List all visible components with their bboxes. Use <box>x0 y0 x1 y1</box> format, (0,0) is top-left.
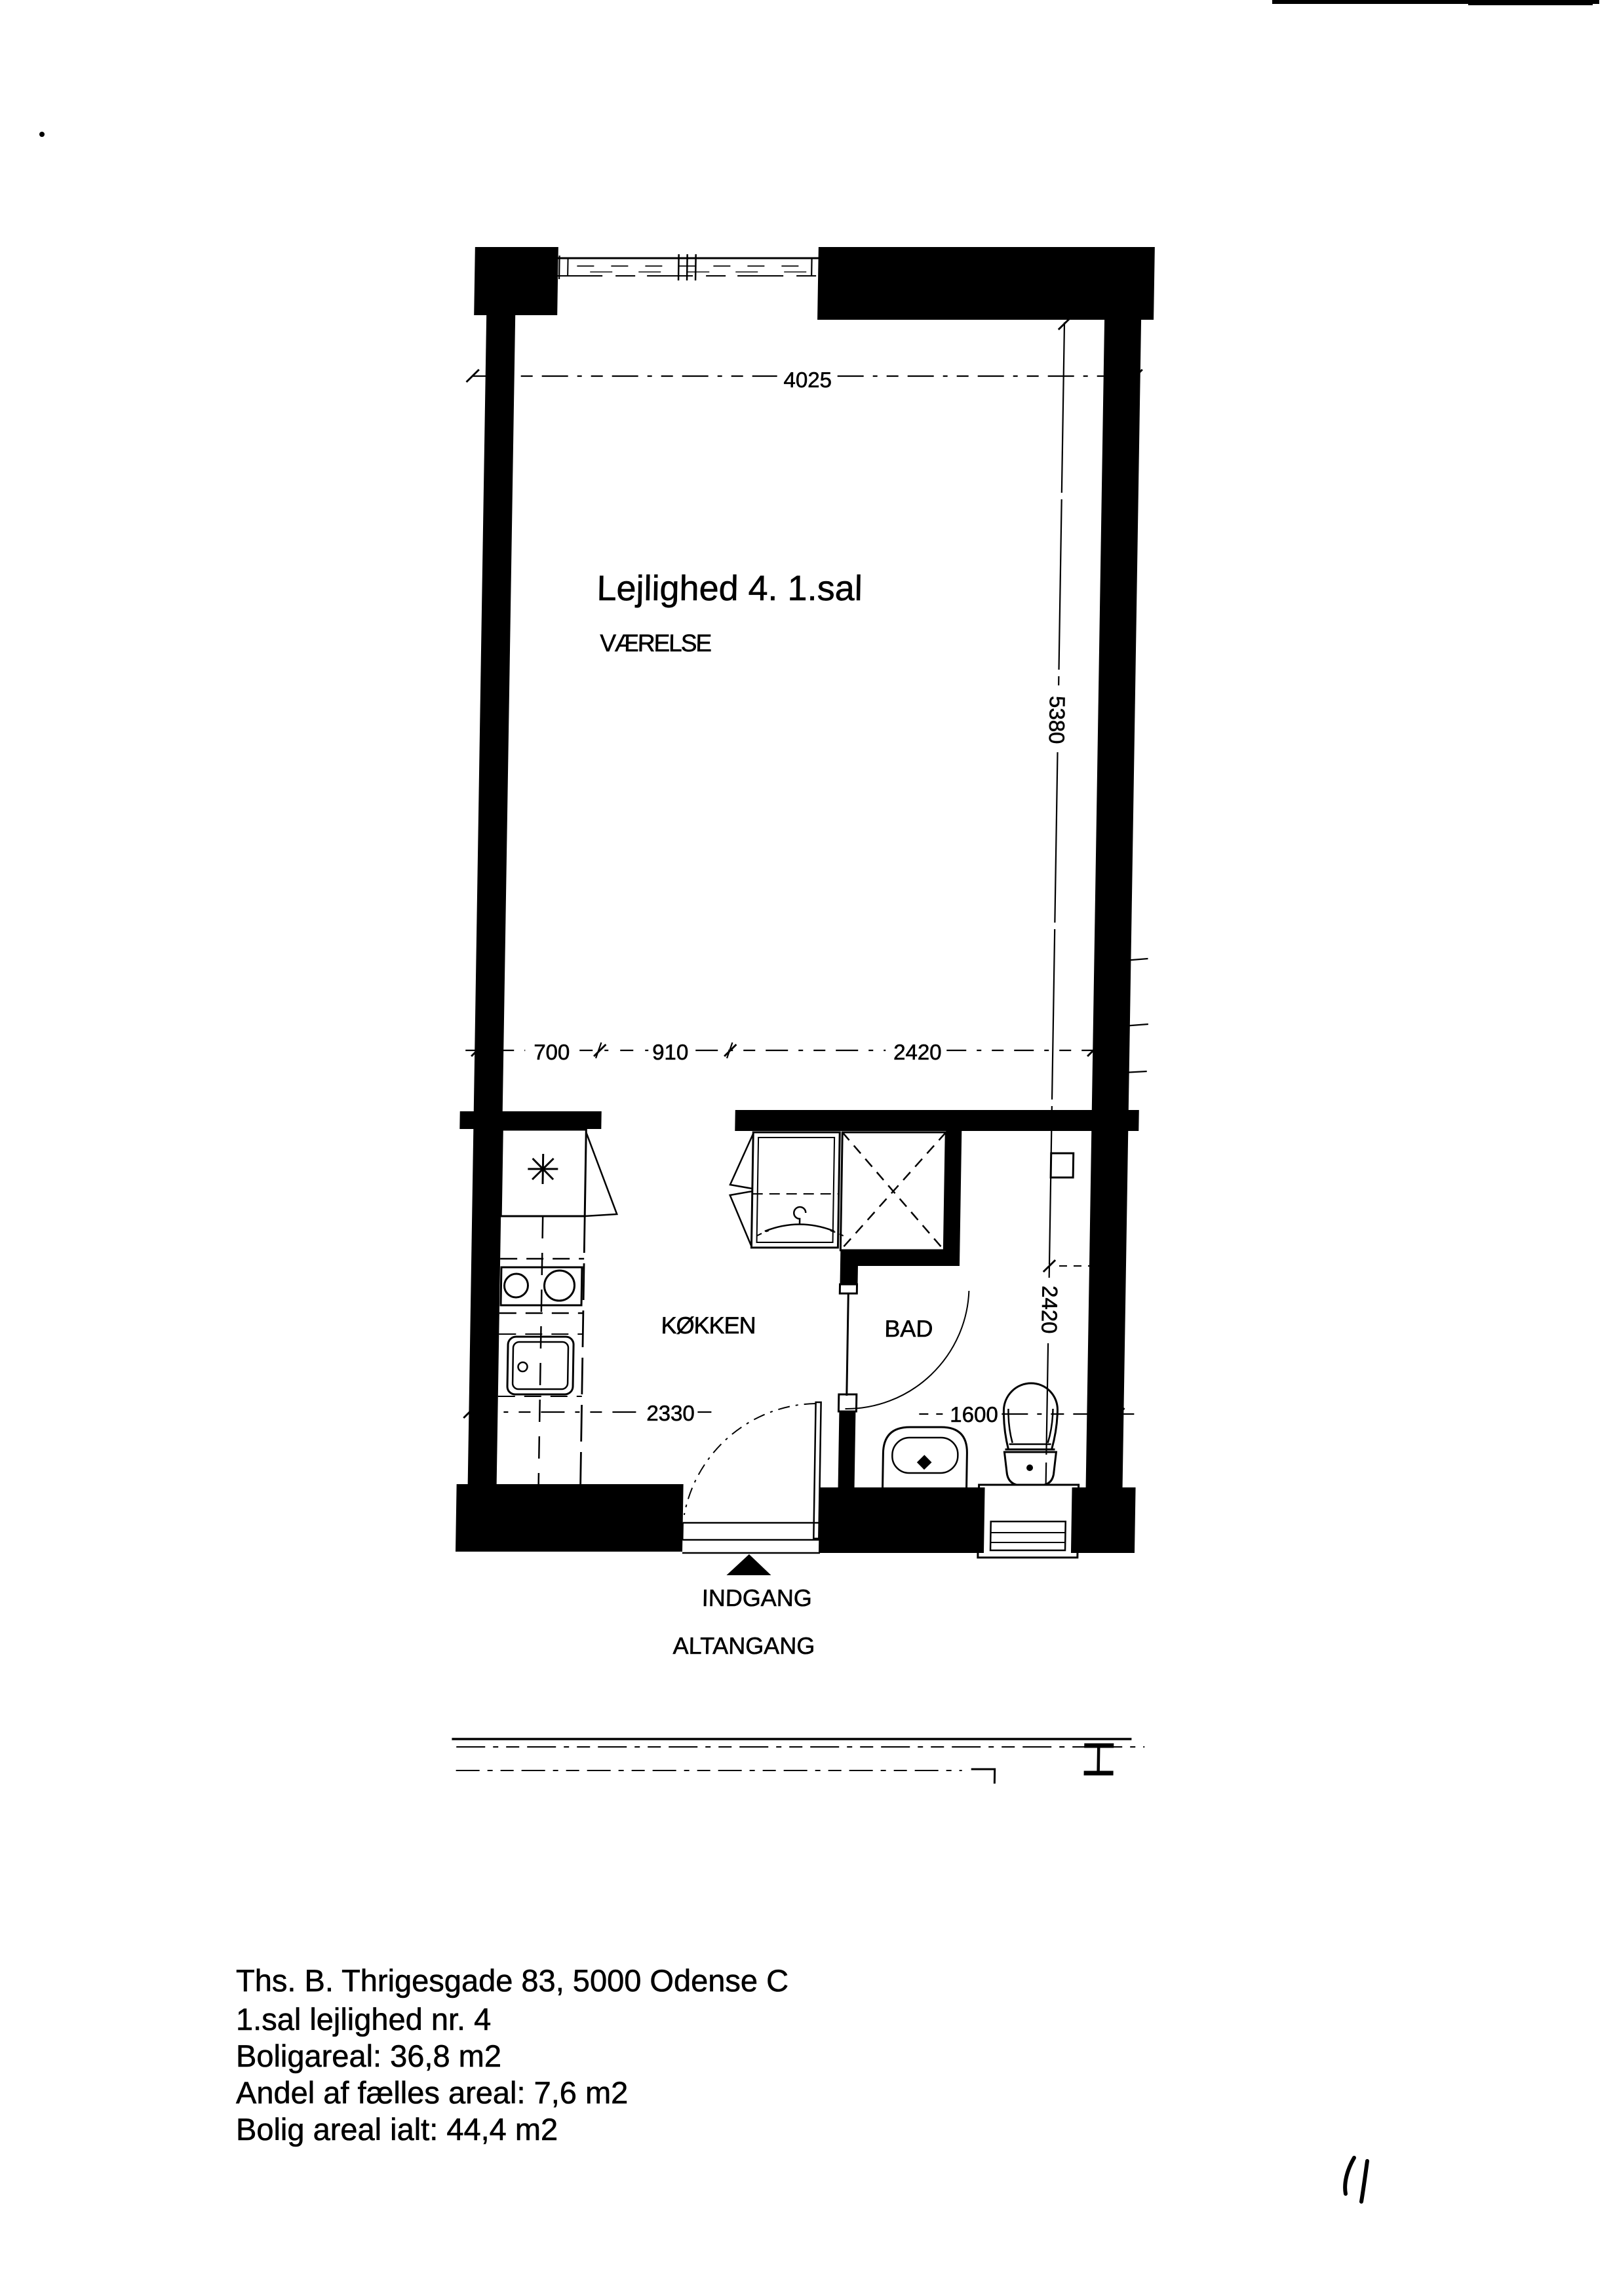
svg-text:INDGANG: INDGANG <box>702 1584 813 1611</box>
svg-text:910: 910 <box>652 1040 689 1064</box>
svg-text:5380: 5380 <box>1045 696 1070 744</box>
svg-text:700: 700 <box>534 1040 570 1064</box>
svg-text:Bolig areal ialt: 44,4 m2: Bolig areal ialt: 44,4 m2 <box>236 2112 558 2147</box>
svg-text:2420: 2420 <box>893 1040 942 1064</box>
svg-text:Boligareal: 36,8 m2: Boligareal: 36,8 m2 <box>236 2038 501 2073</box>
svg-text:2330: 2330 <box>646 1401 695 1425</box>
svg-text:KØKKEN: KØKKEN <box>661 1312 756 1339</box>
svg-text:4025: 4025 <box>783 368 832 392</box>
svg-text:VÆRELSE: VÆRELSE <box>600 630 712 657</box>
svg-text:Andel af fælles areal: 7,6 m2: Andel af fælles areal: 7,6 m2 <box>236 2075 628 2110</box>
svg-text:2420: 2420 <box>1037 1286 1062 1333</box>
svg-text:Lejlighed 4. 1.sal: Lejlighed 4. 1.sal <box>596 569 863 608</box>
svg-text:ALTANGANG: ALTANGANG <box>672 1632 815 1659</box>
svg-text:BAD: BAD <box>884 1315 933 1342</box>
svg-text:1.sal lejlighed nr. 4: 1.sal lejlighed nr. 4 <box>236 2002 491 2037</box>
svg-text:Ths. B. Thrigesgade 83, 5000 O: Ths. B. Thrigesgade 83, 5000 Odense C <box>236 1963 788 1998</box>
svg-text:1600: 1600 <box>950 1402 998 1426</box>
